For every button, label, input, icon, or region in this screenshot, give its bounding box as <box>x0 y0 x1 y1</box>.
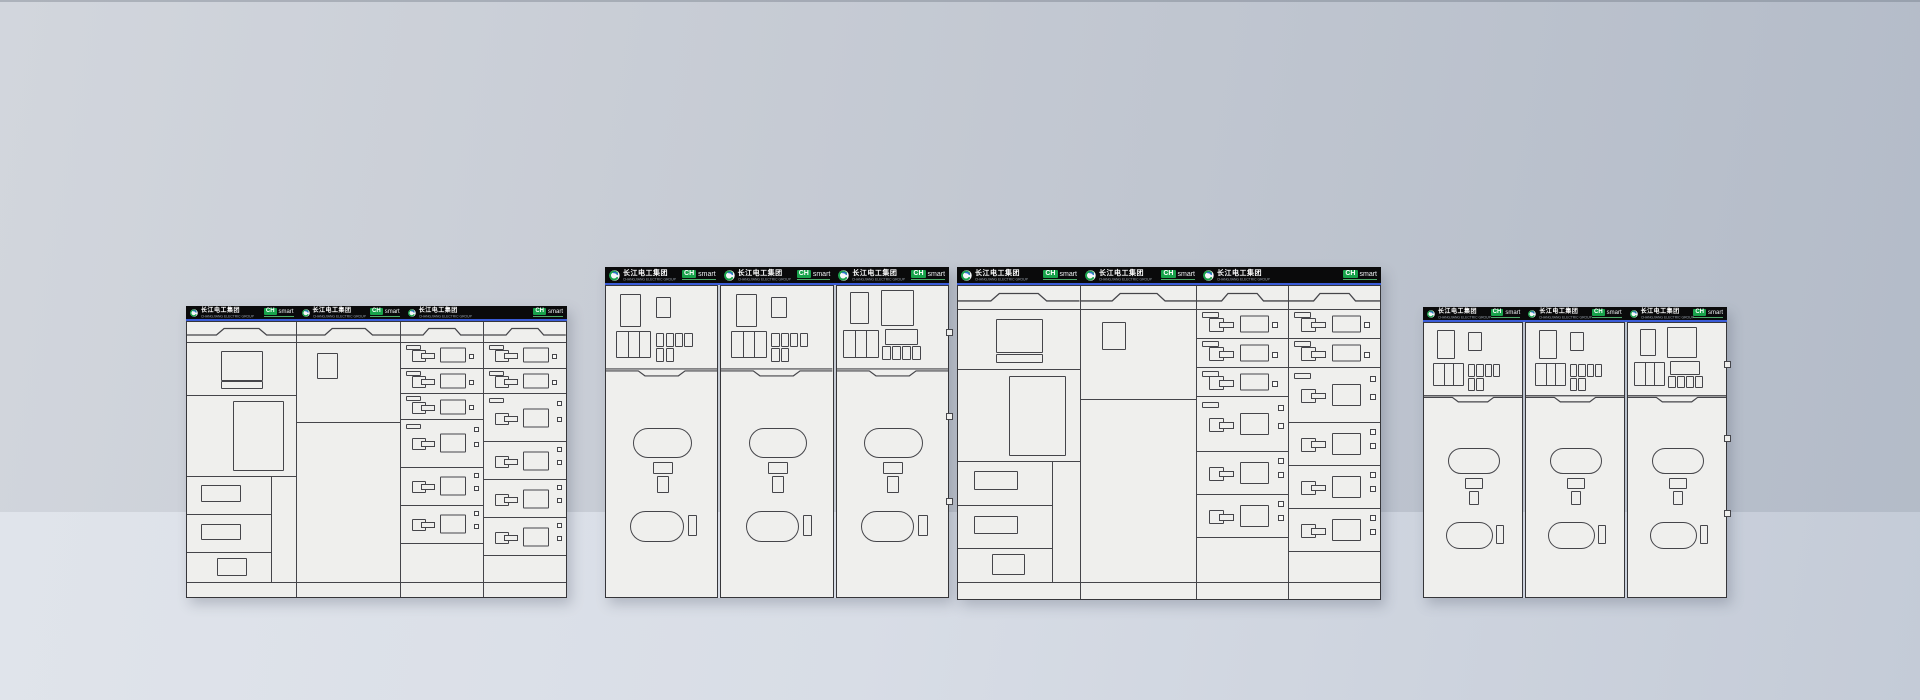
meter-display <box>736 294 757 327</box>
door-handle <box>1465 478 1483 489</box>
meter-bank-divider <box>855 331 856 356</box>
status-dot <box>469 380 474 385</box>
lower-handle <box>1700 525 1708 544</box>
cabinet-column[interactable] <box>400 322 483 597</box>
cabinet-column[interactable] <box>1196 286 1288 599</box>
cabinet-column[interactable] <box>1080 286 1196 599</box>
brand-logo: 长江电工集团CHANGJIANG ELECTRIC GROUP <box>1085 270 1161 281</box>
compartment-divider <box>1628 394 1726 404</box>
drawer-window <box>440 515 467 534</box>
indicator-lamp <box>1587 364 1594 377</box>
indicator-lamp <box>1468 378 1475 391</box>
drawer-handle-icon <box>1209 467 1234 479</box>
ch-smart-badge: CHsmart <box>797 270 831 281</box>
status-dot <box>1278 423 1284 429</box>
lower-left <box>958 462 1052 582</box>
ch-smart-badge-primary: CH <box>370 308 383 316</box>
cabinet-column[interactable] <box>187 322 296 597</box>
mv-lineup-large: 长江电工集团CHANGJIANG ELECTRIC GROUPCHsmart长江… <box>605 267 949 598</box>
drawer-window <box>1332 519 1361 541</box>
vent-louver <box>187 322 296 343</box>
handle-grip <box>421 379 434 385</box>
indicator-lamp <box>675 333 683 347</box>
handle-grip <box>504 535 517 541</box>
drawer-unit[interactable] <box>1197 451 1288 494</box>
ch-smart-badge-secondary: smart <box>548 309 563 315</box>
drawer-unit[interactable] <box>401 505 483 543</box>
small-window <box>317 353 339 379</box>
ch-smart-badge-secondary: smart <box>1178 271 1196 278</box>
drawer-unit[interactable] <box>1289 367 1380 421</box>
door-handle <box>768 462 788 474</box>
drawer-handle-icon <box>412 402 434 412</box>
ch-smart-badge-primary: CH <box>911 270 925 279</box>
meter-bank-divider <box>1453 364 1454 385</box>
status-dot <box>1278 458 1284 464</box>
plinth <box>484 582 566 597</box>
brand-logo-texts: 长江电工集团CHANGJIANG ELECTRIC GROUP <box>313 308 371 318</box>
drawer-unit[interactable] <box>1197 367 1288 396</box>
drawer-unit[interactable] <box>484 368 566 394</box>
drawer-window <box>1240 462 1269 484</box>
vent-box <box>187 552 271 582</box>
door-section <box>1526 404 1624 597</box>
drawer-handle-icon <box>495 532 517 542</box>
status-dot <box>1278 501 1284 507</box>
brand-logo-text: 长江电工集团 <box>313 308 371 314</box>
status-dot <box>474 442 479 447</box>
drawer-unit[interactable] <box>401 419 483 467</box>
viewing-window <box>864 428 923 457</box>
meter-bank-divider <box>1444 364 1445 385</box>
drawer-window <box>523 408 550 427</box>
vent-grille <box>217 558 247 576</box>
vent-slot <box>406 424 421 429</box>
indicator-lamp <box>771 348 779 362</box>
hinge <box>1724 510 1731 517</box>
ch-smart-badge: CHsmart <box>1491 309 1521 319</box>
vent-slot <box>489 345 504 350</box>
brand-logo: 长江电工集团CHANGJIANG ELECTRIC GROUP <box>961 270 1043 281</box>
cabinet-body <box>1423 322 1727 598</box>
vent-grille <box>201 524 241 540</box>
meter-bank-divider <box>1645 363 1646 385</box>
brand-logo-texts: 长江电工集团CHANGJIANG ELECTRIC GROUP <box>975 270 1043 281</box>
status-dot <box>552 380 557 385</box>
handle-grip <box>1311 322 1326 329</box>
cabinet-body <box>605 285 949 598</box>
ch-smart-badge: CHsmart <box>533 308 563 318</box>
lower-handle <box>1598 525 1606 544</box>
drawer-unit[interactable] <box>484 343 566 368</box>
cabinet-column[interactable] <box>720 285 833 598</box>
drawer-unit[interactable] <box>1197 338 1288 367</box>
compartment-divider <box>606 367 717 378</box>
handle-grip <box>1311 528 1326 535</box>
handle-grip <box>504 416 517 422</box>
vent-grille <box>974 471 1018 490</box>
drawer-handle-icon <box>1209 318 1234 330</box>
brand-logo-circle-icon <box>724 270 735 281</box>
brand-logo-circle-icon <box>1085 270 1096 281</box>
handle-grip <box>421 484 434 490</box>
meter-bank <box>1535 363 1566 386</box>
indicator-lamp <box>1695 376 1703 389</box>
drawer-unit[interactable] <box>484 479 566 517</box>
brand-logo-texts: 长江电工集团CHANGJIANG ELECTRIC GROUP <box>1438 309 1491 319</box>
drawer-window <box>1332 345 1361 362</box>
brand-logo-icon <box>961 270 972 281</box>
brand-header-segment: 长江电工集团CHANGJIANG ELECTRIC GROUPCHsmart <box>1199 267 1381 283</box>
brand-logo-icon <box>1085 270 1096 281</box>
handle-grip <box>504 379 517 385</box>
brand-logo-text: 长江电工集团 <box>623 270 682 277</box>
status-dot <box>557 417 562 422</box>
drawer-unit[interactable] <box>1289 508 1380 551</box>
brand-header-segment: 长江电工集团CHANGJIANG ELECTRIC GROUPCHsmart <box>1423 307 1524 320</box>
brand-logo-subtext: CHANGJIANG ELECTRIC GROUP <box>623 278 648 280</box>
drawer-window <box>523 451 550 470</box>
plinth <box>401 582 483 597</box>
status-dot <box>474 473 479 478</box>
empty-section <box>484 555 566 582</box>
handle-grip <box>421 353 434 359</box>
brand-logo: 长江电工集团CHANGJIANG ELECTRIC GROUP <box>190 308 264 318</box>
instrument-compartment <box>1628 323 1726 394</box>
door-section <box>1628 404 1726 597</box>
drawer-unit[interactable] <box>401 343 483 368</box>
cabinet-column[interactable] <box>605 285 718 598</box>
brand-logo-icon <box>1203 270 1214 281</box>
cabinet-column[interactable] <box>836 285 949 598</box>
status-dot <box>1370 515 1376 521</box>
brand-logo-texts: 长江电工集团CHANGJIANG ELECTRIC GROUP <box>1539 309 1592 319</box>
cabinet-column[interactable] <box>483 322 566 597</box>
indicator-lamp <box>684 333 692 347</box>
door-handle <box>1567 478 1585 489</box>
brand-logo-circle-icon <box>961 270 972 281</box>
brand-logo-texts: 长江电工集团CHANGJIANG ELECTRIC GROUP <box>852 270 911 281</box>
lower-handle <box>1496 525 1504 544</box>
drawer-unit[interactable] <box>484 441 566 479</box>
indicator-lamp <box>781 333 789 347</box>
status-dot <box>1370 529 1376 535</box>
brand-logo-subtext: CHANGJIANG ELECTRIC GROUP <box>1539 316 1561 318</box>
cabinet-column[interactable] <box>958 286 1080 599</box>
brand-logo-icon <box>724 270 735 281</box>
indicator-lamp <box>790 333 798 347</box>
meter-display <box>1640 329 1657 357</box>
handle-grip <box>1311 351 1326 358</box>
status-dot <box>474 511 479 516</box>
ch-smart-badge: CHsmart <box>1693 309 1723 319</box>
indicator-lamp <box>1476 364 1483 377</box>
wall-top-edge <box>0 0 1920 2</box>
ch-smart-badge-primary: CH <box>264 308 277 316</box>
drawer-handle-icon <box>1301 524 1326 536</box>
vent-slot <box>406 345 421 350</box>
status-dot <box>1278 515 1284 521</box>
meter-display <box>221 351 263 381</box>
status-dot <box>1278 405 1284 411</box>
status-dot <box>469 405 474 410</box>
ch-smart-badge-primary: CH <box>1693 309 1706 317</box>
indicator-lamp <box>1476 378 1483 391</box>
indicator-lamp <box>1485 364 1492 377</box>
cabinet-column[interactable] <box>1423 322 1523 598</box>
brand-logo-subtext: CHANGJIANG ELECTRIC GROUP <box>852 278 877 280</box>
ch-smart-badge: CHsmart <box>264 308 294 318</box>
brand-logo-circle-icon <box>190 309 198 317</box>
column-content <box>1289 310 1380 582</box>
drawer-unit[interactable] <box>484 393 566 441</box>
indicator-lamp <box>656 348 664 362</box>
status-dot <box>1272 322 1278 328</box>
indicator-lamp <box>1493 364 1500 377</box>
plinth <box>1289 582 1380 599</box>
compartment-divider <box>1424 394 1522 404</box>
plinth <box>1081 582 1196 599</box>
brand-logo-subtext: CHANGJIANG ELECTRIC GROUP <box>1217 278 1270 280</box>
indicator-lamp <box>656 333 664 347</box>
handle-grip <box>1219 514 1234 521</box>
drawer-handle-icon <box>1301 438 1326 450</box>
lower-right-panel <box>271 477 296 582</box>
brand-logo-icon <box>1630 310 1638 318</box>
cabinet-column[interactable] <box>296 322 400 597</box>
meter-display <box>1437 330 1456 359</box>
drawer-window <box>523 527 550 546</box>
drawer-window <box>1240 413 1269 435</box>
vent-grille <box>201 485 241 502</box>
status-dot <box>557 447 562 452</box>
ch-smart-badge-primary: CH <box>1592 309 1605 317</box>
drawer-handle-icon <box>412 350 434 360</box>
meter-display <box>620 294 641 327</box>
indicator-lamp <box>1570 364 1577 377</box>
brand-logo-subtext: CHANGJIANG ELECTRIC GROUP <box>201 315 227 317</box>
small-window <box>1468 332 1482 351</box>
drawer-handle-icon <box>412 519 434 529</box>
indicator-lamp <box>1595 364 1602 377</box>
drawer-unit[interactable] <box>1289 422 1380 465</box>
status-dot <box>474 524 479 529</box>
lower-viewing-window <box>630 511 683 542</box>
brand-logo-text: 长江电工集团 <box>975 270 1043 277</box>
brand-logo-icon <box>408 309 416 317</box>
instrument-compartment <box>1424 323 1522 394</box>
drawer-unit[interactable] <box>484 517 566 555</box>
handle-grip <box>421 405 434 411</box>
brand-header-segment: 长江电工集团CHANGJIANG ELECTRIC GROUPCHsmart <box>1081 267 1199 283</box>
drawer-handle-icon <box>412 376 434 386</box>
lower-viewing-window <box>861 511 914 542</box>
hinge <box>1724 435 1731 442</box>
door-section <box>721 378 832 597</box>
meter-bank-divider <box>754 332 755 356</box>
drawer-window <box>1240 345 1269 362</box>
ch-smart-badge-secondary: smart <box>928 271 946 278</box>
drawer-handle-icon <box>495 456 517 466</box>
blank-door <box>297 422 400 582</box>
drawer-window <box>523 489 550 508</box>
label-plate <box>885 329 918 345</box>
meter-bank <box>1634 362 1665 386</box>
vent-slot <box>1294 373 1311 379</box>
column-content <box>297 343 400 582</box>
drawer-unit[interactable] <box>401 393 483 419</box>
drawer-unit[interactable] <box>1289 338 1380 367</box>
meter-bank <box>616 331 651 357</box>
drawer-handle-icon <box>1301 481 1326 493</box>
brand-logo: 长江电工集团CHANGJIANG ELECTRIC GROUP <box>1203 270 1343 281</box>
mv-lineup-small: 长江电工集团CHANGJIANG ELECTRIC GROUPCHsmart长江… <box>1423 307 1727 598</box>
drawer-unit[interactable] <box>1197 310 1288 338</box>
drawer-unit[interactable] <box>1197 494 1288 537</box>
lower-left <box>187 477 271 582</box>
indicator-lamp <box>781 348 789 362</box>
meter-bank-divider <box>639 332 640 356</box>
ch-smart-badge: CHsmart <box>682 270 716 281</box>
brand-header-segment: 长江电工集团CHANGJIANG ELECTRIC GROUPCHsmart <box>957 267 1081 283</box>
lower-viewing-window <box>746 511 799 542</box>
status-dot <box>474 427 479 432</box>
blank-door <box>1081 399 1196 582</box>
ch-smart-badge: CHsmart <box>1161 270 1195 281</box>
status-dot <box>557 498 562 503</box>
status-dot <box>1370 429 1376 435</box>
indicator-lamp <box>771 333 779 347</box>
drawer-window <box>1332 433 1361 455</box>
handle-grip <box>1219 471 1234 478</box>
ch-smart-badge-secondary: smart <box>698 271 716 278</box>
handle-grip <box>504 497 517 503</box>
status-dot <box>1370 443 1376 449</box>
meter-strip <box>221 381 263 389</box>
indicator-lamp <box>1468 364 1475 377</box>
brand-logo-text: 长江电工集团 <box>1099 270 1161 277</box>
handle-grip <box>1219 422 1234 429</box>
indicator-lamp <box>666 348 674 362</box>
drawer-handle-icon <box>1301 389 1326 401</box>
door-lock <box>1673 491 1684 506</box>
brand-logo-subtext: CHANGJIANG ELECTRIC GROUP <box>313 315 337 317</box>
drawer-unit[interactable] <box>1197 396 1288 450</box>
empty-section <box>1197 537 1288 582</box>
brand-logo-icon <box>190 309 198 317</box>
hinge <box>946 329 953 336</box>
drawer-handle-icon <box>495 413 517 423</box>
vent-louver <box>1081 286 1196 310</box>
brand-logo: 长江电工集团CHANGJIANG ELECTRIC GROUP <box>1630 309 1694 319</box>
drawer-handle-icon <box>495 494 517 504</box>
plinth <box>958 582 1080 599</box>
hinge <box>1724 361 1731 368</box>
column-content <box>958 310 1080 582</box>
brand-logo-icon <box>838 270 849 281</box>
plinth <box>187 582 296 597</box>
ch-smart-badge-secondary: smart <box>813 271 831 278</box>
brand-logo-circle-icon <box>1427 310 1435 318</box>
meter-display <box>1539 330 1558 359</box>
drawer-unit[interactable] <box>1289 465 1380 508</box>
brand-header-segment: 长江电工集团CHANGJIANG ELECTRIC GROUPCHsmart <box>298 306 404 319</box>
ch-smart-badge: CHsmart <box>1343 270 1377 281</box>
brand-logo-circle-icon <box>1630 310 1638 318</box>
handle-grip <box>421 522 434 528</box>
drawer-handle-icon <box>1209 418 1234 430</box>
handle-grip <box>1219 380 1234 387</box>
drawer-window <box>440 399 467 414</box>
large-window <box>1667 327 1696 359</box>
ch-smart-badge: CHsmart <box>1043 270 1077 281</box>
drawer-handle-icon <box>412 438 434 448</box>
meter-bank <box>843 330 878 357</box>
lower-section <box>187 476 296 582</box>
vent-louver <box>958 286 1080 310</box>
breaker-window <box>1009 376 1066 455</box>
drawer-window <box>440 434 467 453</box>
vent-box <box>958 462 1052 505</box>
column-content <box>1197 310 1288 582</box>
door-handle <box>1669 478 1687 489</box>
door-handle <box>653 462 673 474</box>
drawer-window <box>1332 384 1361 406</box>
ch-smart-badge: CHsmart <box>1592 309 1622 319</box>
brand-logo-texts: 长江电工集团CHANGJIANG ELECTRIC GROUP <box>738 270 797 281</box>
ch-smart-badge-primary: CH <box>797 270 811 279</box>
drawer-unit[interactable] <box>401 368 483 394</box>
vent-slot <box>1202 402 1219 408</box>
brand-logo: 长江电工集团CHANGJIANG ELECTRIC GROUP <box>408 308 534 318</box>
instrument-compartment <box>721 286 832 367</box>
vent-slot <box>489 371 504 376</box>
drawer-handle-icon <box>1209 510 1234 522</box>
brand-header-segment: 长江电工集团CHANGJIANG ELECTRIC GROUPCHsmart <box>605 267 720 283</box>
status-dot <box>1278 472 1284 478</box>
brand-logo-text: 长江电工集团 <box>738 270 797 277</box>
indicator-lamp <box>1570 378 1577 391</box>
drawer-window <box>1240 374 1269 391</box>
cabinet-column[interactable] <box>1525 322 1625 598</box>
meter-bank-divider <box>1546 364 1547 385</box>
cabinet-column[interactable] <box>1627 322 1727 598</box>
brand-logo-texts: 长江电工集团CHANGJIANG ELECTRIC GROUP <box>419 308 534 318</box>
handle-grip <box>504 353 517 359</box>
brand-logo-circle-icon <box>1203 270 1214 281</box>
instrument-compartment <box>1526 323 1624 394</box>
upper-panel <box>297 343 400 422</box>
vent-box <box>187 514 271 552</box>
indicator-lamp <box>1686 376 1694 389</box>
ch-smart-badge: CHsmart <box>370 308 400 318</box>
meter-strip <box>996 354 1043 363</box>
drawer-unit[interactable] <box>401 467 483 505</box>
instrument-compartment <box>837 286 948 367</box>
drawer-window <box>1332 476 1361 498</box>
ch-smart-badge-secondary: smart <box>1360 271 1378 278</box>
brand-logo-text: 长江电工集团 <box>1641 309 1694 315</box>
instrument-compartment <box>606 286 717 367</box>
drawer-unit[interactable] <box>1289 310 1380 338</box>
cabinet-column[interactable] <box>1288 286 1380 599</box>
meter-bank <box>1433 363 1464 386</box>
brand-header-segment: 长江电工集团CHANGJIANG ELECTRIC GROUPCHsmart <box>404 306 567 319</box>
brand-logo-circle-icon <box>1528 310 1536 318</box>
status-dot <box>469 354 474 359</box>
vent-box <box>958 505 1052 549</box>
ch-smart-badge-secondary: smart <box>1708 310 1723 316</box>
